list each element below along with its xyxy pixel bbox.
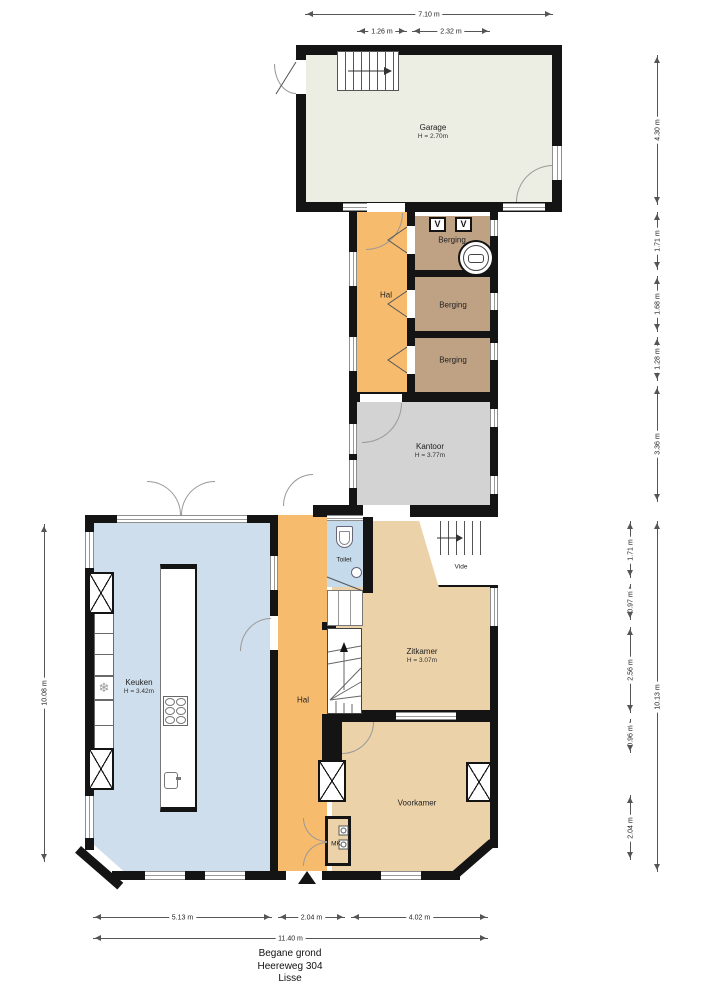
dimension-label: 4.02 m [406,915,433,922]
door-arc [283,474,313,506]
window [503,203,545,211]
room-label-zitkamer: ZitkamerH = 3.07m [406,648,437,664]
dimension-line: 2.56 m [630,627,631,713]
column-box [318,760,346,802]
room-label-keuken: KeukenH = 3.42m [124,679,154,695]
dimension-line: 2.04 m [278,917,345,918]
ensuite-doors [396,712,456,720]
room-label-hal-lower: Hal [297,697,309,706]
window [117,515,247,523]
winder-stairs-icon [327,628,362,714]
dimension-label: 5.13 m [169,915,196,922]
dimension-label: 0.96 m [628,722,635,749]
window [343,203,367,211]
dimension-line: 0.96 m [630,719,631,753]
floor-name: Begane grond [165,948,415,961]
room-label-hal-upper: Hal [380,292,392,301]
door-arc [147,481,181,515]
sink-icon [164,772,178,789]
dimension-label: 2.32 m [437,29,464,36]
dimension-line: 1.26 m [357,31,407,32]
room-label-voorkamer: Voorkamer [398,800,437,809]
kitchen-cabinets [94,612,114,676]
window [552,146,562,180]
dimension-label: 10.08 m [42,677,49,708]
freezer-icon: ❄ [94,676,114,700]
window [85,796,94,838]
dimension-line: 2.04 m [630,795,631,860]
window [327,515,363,521]
window [205,871,245,880]
room-label-toilet: Toilet [336,556,351,563]
dimension-line: 1.71 m [657,212,658,270]
city: Lisse [165,973,415,986]
room-label-berging-2: Berging [439,302,467,311]
window [349,252,357,286]
dimension-line: 4.02 m [351,917,488,918]
dimension-label: 0.97 m [628,588,635,615]
dimension-line: 1.68 m [657,276,658,332]
dimension-line: 1.28 m [657,337,658,381]
window [490,476,498,494]
room-label-garage: GarageH = 2.70m [418,124,448,140]
window [490,343,498,360]
dimension-label: 2.56 m [628,656,635,683]
dimension-line: 5.13 m [93,917,272,918]
window [490,409,498,427]
dimension-label: 3.36 m [655,430,662,457]
window [349,460,357,488]
dimension-label: 10.13 m [655,681,662,712]
vide-stairs-icon [433,521,488,555]
stove-icon [163,696,188,726]
dimension-label: 1.68 m [655,290,662,317]
column-box [88,572,114,614]
dimension-label: 1.71 m [655,227,662,254]
dimension-line: 3.36 m [657,386,658,502]
dimension-label: 1.71 m [628,536,635,563]
door-arc [181,481,215,515]
dimension-label: 7.10 m [415,12,442,19]
room-label-mk: MK [331,840,341,847]
room-label-berging-3: Berging [439,357,467,366]
window [85,532,94,568]
dimension-line: 1.71 m [630,521,631,578]
hand-basin-icon [351,567,362,578]
column-box [466,762,492,802]
window [145,871,185,880]
dimension-label: 1.26 m [368,29,395,36]
window [270,556,278,590]
dimension-line: 7.10 m [305,14,553,15]
dimension-label: 4.30 m [655,116,662,143]
dimension-line: 0.97 m [630,584,631,620]
window [490,220,498,236]
street-address: Heereweg 304 [165,961,415,974]
door-arc [274,64,296,94]
room-label-berging-1: Berging [438,237,466,246]
garage-stairs-icon [337,51,399,91]
dimension-line: 11.40 m [93,938,488,939]
duct-shaft [327,590,363,626]
dimension-label: 2.04 m [628,814,635,841]
dimension-line: 10.13 m [657,521,658,872]
ventilation-icon: V [429,217,446,232]
dimension-label: 2.04 m [298,915,325,922]
floor-plan: V V ❄ [0,0,707,1000]
window [349,424,357,454]
column-box [88,748,114,790]
dimension-label: 11.40 m [275,936,306,943]
dimension-line: 4.30 m [657,55,658,205]
toilet-icon [336,526,353,548]
window [490,588,498,626]
title-block: Begane grond Heereweg 304 Lisse [165,948,415,986]
kitchen-cabinets [94,700,114,750]
window [349,337,357,371]
window [381,871,421,880]
room-label-kantoor: KantoorH = 3.77m [415,443,445,459]
front-door-opening [286,871,322,880]
dimension-label: 1.28 m [655,345,662,372]
dimension-line: 2.32 m [412,31,490,32]
dimension-line: 10.08 m [44,524,45,862]
room-label-vide: Vide [455,563,468,570]
window [490,293,498,310]
ventilation-icon: V [455,217,472,232]
